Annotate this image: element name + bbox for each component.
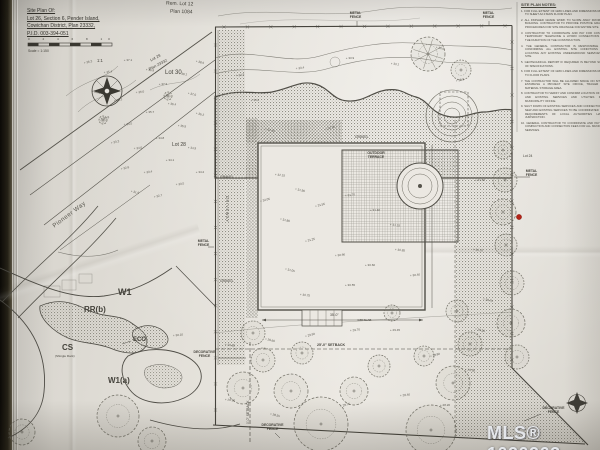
tree-icon <box>451 60 471 80</box>
site-note: 9. SHUT DOWN OF EXISTING SERVICES AND CO… <box>521 105 600 120</box>
setback-25-label: 25'-0" SETBACK <box>317 343 345 347</box>
site-note: 10. GENERAL CONTRACTOR TO COORDINATE AND… <box>521 122 600 133</box>
site-note: 3. CONTRACTOR TO COORDINATE AND PAY FOR … <box>521 32 600 43</box>
red-survey-marker <box>516 214 521 219</box>
fence-label-metal: METAL FENCE <box>520 170 543 178</box>
fence-label-decorative: DECORATIVE FENCE <box>191 351 218 359</box>
site-note: 5. GEOTECHNICAL REPORT IF REQUIRED IS BE… <box>521 61 600 68</box>
title-line: P.I.D. 003-394-051 <box>27 31 100 37</box>
tree-icon <box>493 168 517 192</box>
notes-header: SITE PLAN NOTES: <box>521 3 600 7</box>
tree-icon <box>505 345 529 369</box>
driveway-label: DRIVEWAY <box>225 196 229 223</box>
tree-icon <box>291 342 313 364</box>
tree-icon <box>490 199 516 225</box>
tree-icon <box>494 141 512 159</box>
tree-icon <box>227 372 259 404</box>
tree-icon <box>436 366 470 400</box>
zone-label-eco: ECO <box>133 337 146 344</box>
fence-label-metal: METAL FENCE <box>477 12 500 20</box>
tree-icon <box>99 116 107 124</box>
tree-icon <box>294 397 348 450</box>
tree-icon <box>414 346 434 366</box>
outdoor-terrace-label: OUTDOOR TERRACE <box>360 152 392 160</box>
scale-text: Scale = 1:150 <box>28 49 49 53</box>
tree-icon <box>138 427 166 450</box>
site-plan-photo: + 36.2+ 35.4+ 37.1+ 36.8+ 34.9+ 35.2+ 36… <box>0 0 600 450</box>
title-line: Cowichan District, Plan 23332, <box>27 23 100 29</box>
site-note: 2. ALL FINISHED GRADE WORK TO SLOPE AWAY… <box>521 19 600 30</box>
zone-label-cs: CS <box>62 344 73 353</box>
terrain-lot-lines <box>2 32 215 318</box>
scale-bar <box>28 43 112 46</box>
tree-icon <box>274 374 308 408</box>
site-note: 6. FOR FULL EXTENT OF GRID LINES AND DIM… <box>521 70 600 77</box>
tree-icon <box>340 377 368 405</box>
tree-icon <box>406 405 456 450</box>
tree-icon <box>97 395 139 437</box>
fence-label-metal: METAL FENCE <box>192 240 215 248</box>
tree-icon <box>368 355 390 377</box>
tree-icon <box>446 300 468 322</box>
tree-icon <box>497 309 525 337</box>
tree-icon <box>9 419 35 445</box>
tree-icon <box>164 92 172 100</box>
plan-linework <box>0 0 600 450</box>
scale-tick-numbers: 0 2 4 6 8 10 <box>28 37 116 41</box>
dimension-35-label: 35'-0" <box>330 314 339 318</box>
zone-label-w1: W1 <box>118 287 132 297</box>
site-note: 4. THE GENERAL CONTRACTOR IS RESPONSIBLE… <box>521 45 600 60</box>
title-block: Site Plan Of: Lot 26, Section 6, Pender … <box>27 8 100 38</box>
lot-label-lot28: Lot 28 <box>172 143 186 149</box>
fence-label-decorative: DECORATIVE FENCE <box>540 407 567 415</box>
tree-icon <box>458 332 482 356</box>
tree-icon <box>500 271 524 295</box>
slab-label: 4.88 SLAB <box>357 319 371 322</box>
site-plan-notes: SITE PLAN NOTES: 1. FOR FULL EXTENT OF G… <box>521 3 600 135</box>
notes-items: 1. FOR FULL EXTENT OF GRID LINES AND DIM… <box>521 10 600 133</box>
tree-icon <box>251 348 275 372</box>
tree-icon <box>384 305 400 321</box>
site-note: 1. FOR FULL EXTENT OF GRID LINES AND DIM… <box>521 10 600 17</box>
title-line: Site Plan Of: <box>27 8 100 14</box>
mls-watermark: MLS® 1020263 <box>487 423 600 450</box>
fence-label-metal: METAL FENCE <box>344 12 367 20</box>
survey-marker-layer <box>516 214 521 219</box>
fence-label-decorative: DECORATIVE FENCE <box>259 424 286 432</box>
compass-label: 1:1 <box>97 59 103 64</box>
gravel-label: GRAVEL <box>220 176 234 180</box>
tree-icon <box>495 234 517 256</box>
setback-0-label: 0'-0" SETBACK <box>247 400 251 424</box>
tree-icon <box>411 37 445 71</box>
compass-rose-icon <box>92 76 122 106</box>
tree-icon <box>241 321 265 345</box>
lot-label-lot24: Lot 24 <box>523 155 532 159</box>
gravel-label: GRAVEL <box>355 136 369 140</box>
zone-label-rrb: RR(b) <box>84 306 106 315</box>
gravel-label: GRAVEL <box>220 280 234 284</box>
lot-label-plan1084: Plan 1084 <box>170 10 193 16</box>
lot-label-rem12: Rem. Lot 12 <box>166 2 193 9</box>
lot-label-lot30: Lot 30 <box>165 70 182 77</box>
zone-sublabel-cs: (Shingle Rock) <box>55 355 75 358</box>
site-note: 7. THE CONTRACTOR WILL BE ALLOWED SPACE … <box>521 80 600 91</box>
site-note: 8. CONTRACTOR TO VERIFY AND CONFIRM LOCA… <box>521 92 600 103</box>
north-arrow-icon <box>566 392 588 414</box>
zone-label-w1a: W1(a) <box>108 377 130 386</box>
title-line: Lot 26, Section 6, Pender Island, <box>27 16 100 22</box>
